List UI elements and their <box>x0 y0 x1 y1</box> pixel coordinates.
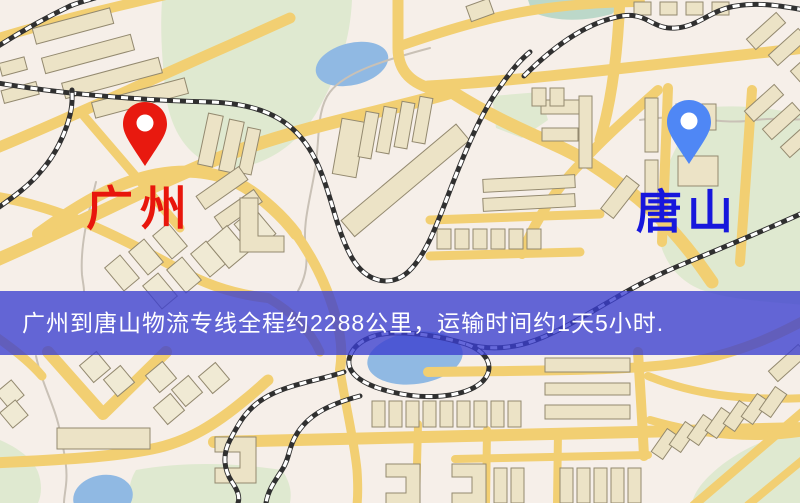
route-info-text: 广州到唐山物流专线全程约2288公里，运输时间约1天5小时. <box>22 310 664 336</box>
map-image: 广州到唐山物流专线全程约2288公里，运输时间约1天5小时. 广州 唐山 <box>0 0 800 503</box>
map-canvas <box>0 0 800 503</box>
guangzhou-pin-hole <box>137 115 154 132</box>
tangshan-pin-shape <box>667 100 711 164</box>
guangzhou-pin-icon <box>122 101 168 167</box>
tangshan-pin-hole <box>681 113 698 130</box>
guangzhou-pin-shape <box>123 102 167 166</box>
tangshan-pin-icon <box>666 99 712 165</box>
route-info-banner: 广州到唐山物流专线全程约2288公里，运输时间约1天5小时. <box>0 291 800 355</box>
